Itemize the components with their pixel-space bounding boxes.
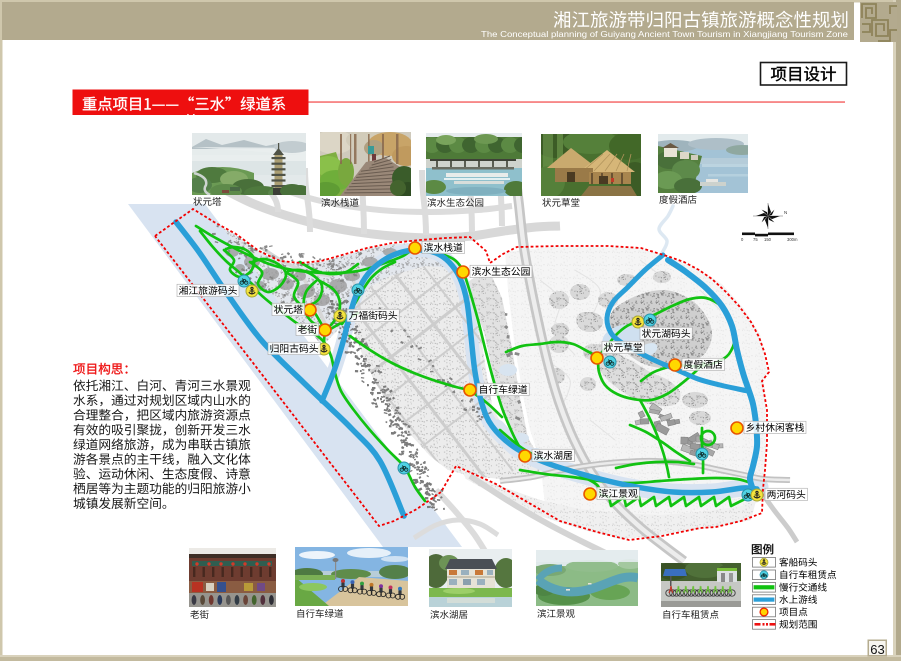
svg-text:63: 63 xyxy=(870,642,884,657)
svg-text:300m: 300m xyxy=(787,237,798,242)
svg-text:150: 150 xyxy=(764,237,772,242)
svg-text:75: 75 xyxy=(753,237,758,242)
svg-text:The Conceptual planning of Gui: The Conceptual planning of Guiyang Ancie… xyxy=(481,29,848,39)
svg-text:N: N xyxy=(784,210,787,215)
